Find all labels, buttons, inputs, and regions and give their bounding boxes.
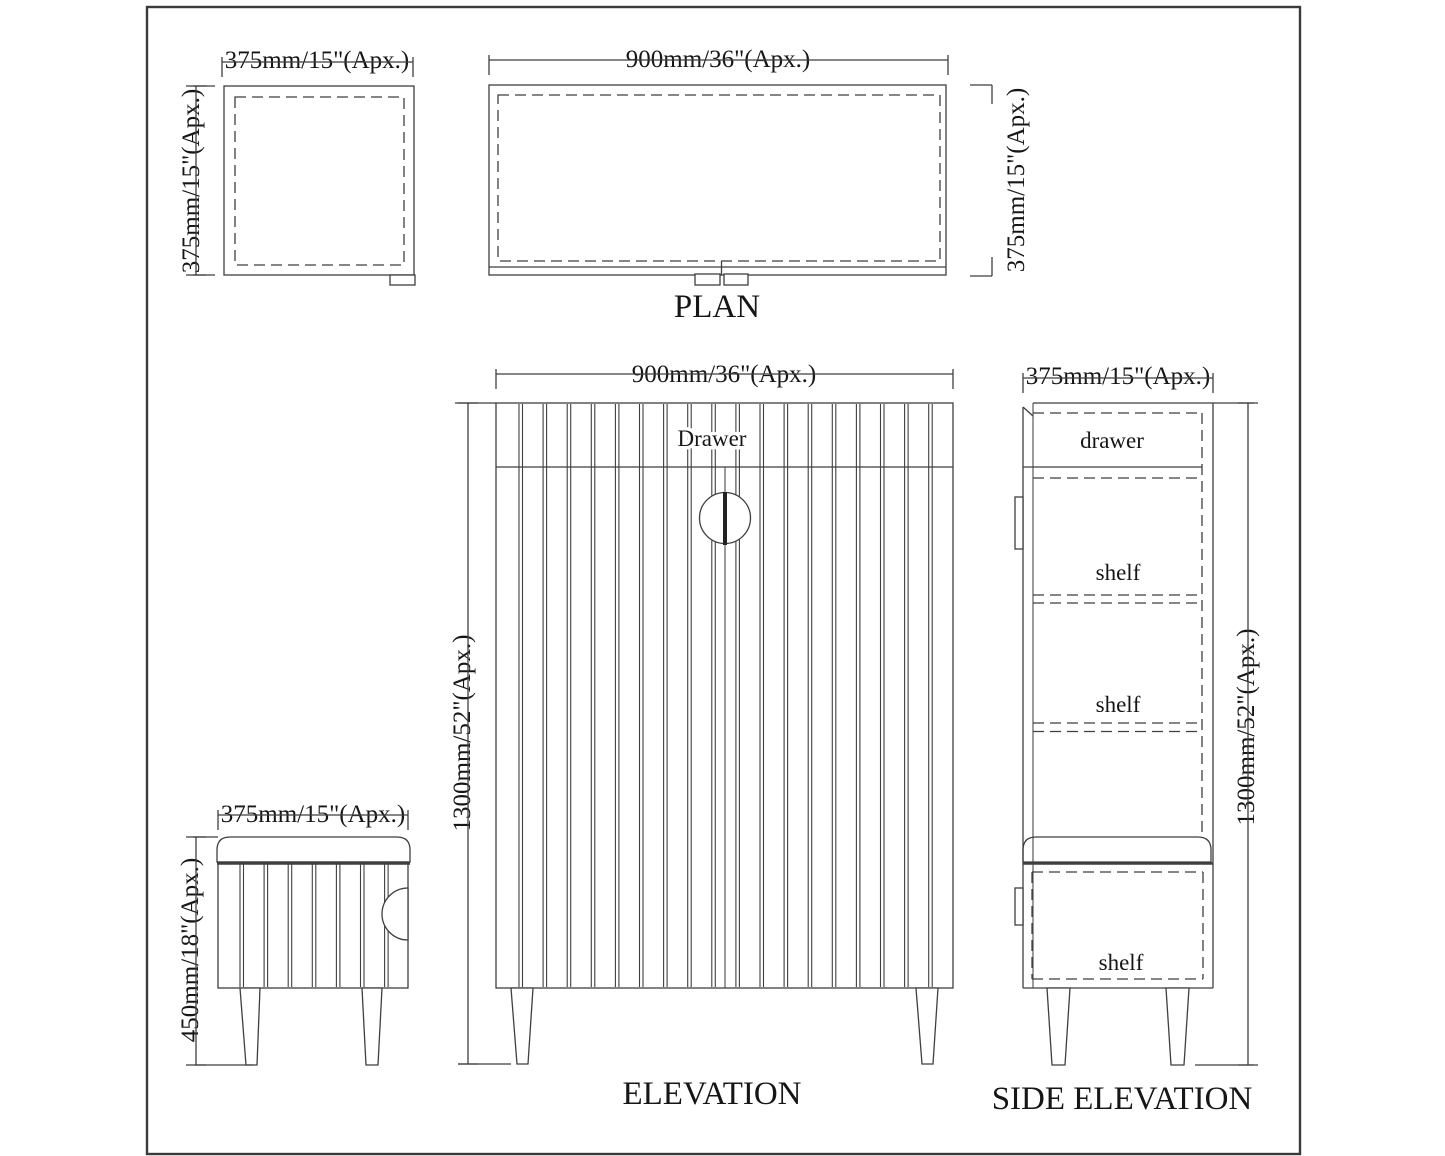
side-leg-right [1166,988,1189,1065]
plan-tab-left [695,274,720,285]
plan-caption: PLAN [674,289,760,325]
side-elevation-caption: SIDE ELEVATION [992,1081,1253,1117]
side-shelf-label-1: shelf [1096,560,1141,585]
small-plan-tab [390,275,415,285]
small-plan-inner-dashed [235,97,404,265]
elevation-drawer-label: Drawer [678,426,747,451]
side-seat-cushion [1023,837,1211,862]
plan-height-dimension: 375mm/15"(Apx.) [1003,88,1030,273]
side-shelf-label-2: shelf [1096,692,1141,717]
bench-cushion [217,837,410,862]
bench-slats [240,863,388,987]
plan-tab-right [724,274,748,285]
plan-inner-dashed [498,95,940,261]
plan-view: 900mm/36"(Apx.)375mm/15"(Apx.)PLAN [489,46,1030,325]
side-drawer-label: drawer [1080,428,1144,453]
elevation-view: Drawer900mm/36"(Apx.)1300mm/52"(Apx.)ELE… [449,361,953,1112]
small-plan-view: 375mm/15"(Apx.)375mm/15"(Apx.) [178,47,415,285]
bench-height-dimension: 450mm/18"(Apx.) [177,858,204,1043]
elevation-leg-right [916,988,938,1064]
elevation-height-dimension: 1300mm/52"(Apx.) [449,635,476,832]
bench-leg-right [362,988,382,1065]
side-height-dimension: 1300mm/52"(Apx.) [1233,629,1260,826]
bench-handle-halfcircle [382,888,408,940]
small-plan-width-dimension: 375mm/15"(Apx.) [225,47,410,74]
furniture-technical-drawing: 375mm/15"(Apx.)375mm/15"(Apx.) 900mm/36"… [0,0,1445,1156]
bench-view: 375mm/15"(Apx.)450mm/18"(Apx.) [177,801,410,1065]
side-shelf-label-3: shelf [1099,950,1144,975]
side-elevation-view: drawershelfshelfshelf375mm/15"(Apx.)1300… [992,363,1260,1117]
small-plan-height-dimension: 375mm/15"(Apx.) [178,89,205,274]
drawing-sheet: 375mm/15"(Apx.)375mm/15"(Apx.) 900mm/36"… [0,0,1445,1156]
side-top-left-chamfer [1023,407,1033,416]
elevation-leg-left [511,988,533,1064]
side-handle-lower [1015,888,1023,925]
bench-body-outline [218,862,408,988]
elevation-slats [519,404,932,987]
small-plan-outline [224,86,414,275]
plan-outline [489,85,946,275]
elevation-caption: ELEVATION [622,1076,801,1112]
side-handle-upper [1015,497,1023,549]
side-width-dimension: 375mm/15"(Apx.) [1026,363,1211,390]
side-leg-left [1047,988,1070,1065]
bench-leg-left [240,988,260,1065]
